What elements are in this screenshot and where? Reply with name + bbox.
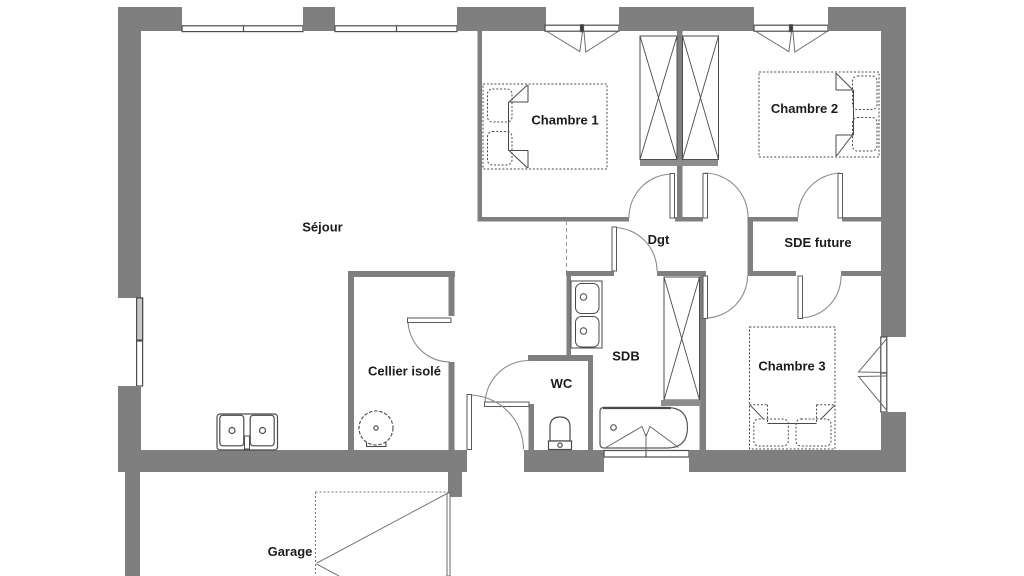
svg-text:Séjour: Séjour [302,220,342,235]
svg-text:SDB: SDB [612,349,639,364]
svg-text:Garage: Garage [268,544,313,559]
svg-text:Dgt: Dgt [648,232,670,247]
svg-text:Cellier isolé: Cellier isolé [368,364,441,379]
svg-text:SDE future: SDE future [784,235,851,250]
svg-text:Chambre 3: Chambre 3 [758,359,825,374]
svg-text:Chambre 1: Chambre 1 [531,113,598,128]
svg-text:WC: WC [551,376,573,391]
svg-text:Chambre 2: Chambre 2 [771,101,838,116]
